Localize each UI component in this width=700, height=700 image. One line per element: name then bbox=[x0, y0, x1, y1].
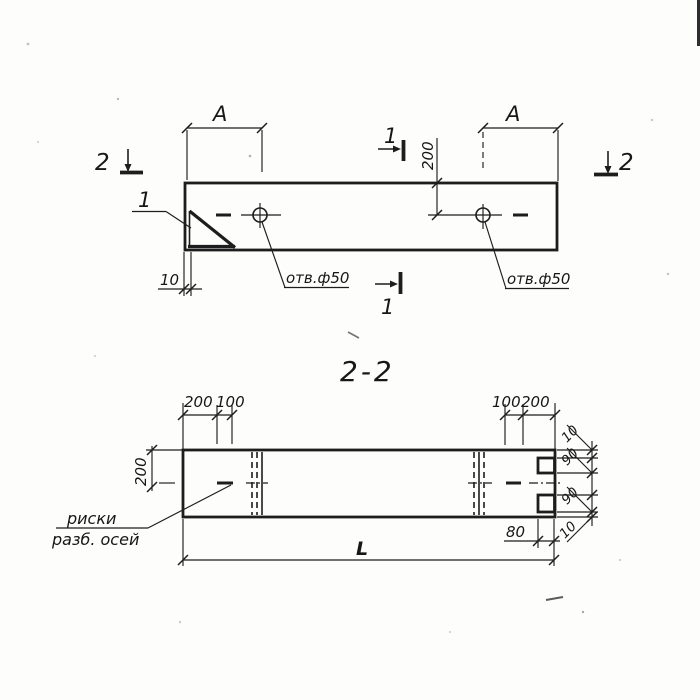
leader-line bbox=[485, 222, 506, 289]
detail-leader-line bbox=[166, 212, 191, 229]
dim-10-plan-label: 10 bbox=[160, 271, 179, 289]
axis-note-line1: риски bbox=[66, 509, 116, 528]
detail-callout-label: 1 bbox=[138, 188, 151, 212]
detail-callout-1: 1 bbox=[132, 188, 191, 228]
notch-top bbox=[538, 458, 555, 473]
dim-chain-right: 10 90 90 10 bbox=[556, 422, 598, 542]
section-view: 2-2 bbox=[51, 355, 598, 566]
hole-label-right-text: отв.ф50 bbox=[507, 270, 570, 288]
hole-left bbox=[216, 203, 281, 228]
leader-line bbox=[262, 222, 285, 288]
corner-plate-detail bbox=[188, 211, 235, 248]
dim-200-plan-label: 200 bbox=[419, 141, 437, 170]
notch-bottom bbox=[538, 495, 555, 512]
dim-a-left-label: A bbox=[211, 102, 227, 126]
dim-tl-100-label: 100 bbox=[216, 393, 245, 411]
dim-tr-100-label: 100 bbox=[492, 393, 521, 411]
section-mark-1-bottom: 1 bbox=[375, 272, 401, 319]
section-mark-2-left-label: 2 bbox=[95, 150, 110, 176]
end-notches bbox=[538, 458, 555, 512]
dim-height-200-label: 200 bbox=[132, 457, 150, 486]
dim-tl-200-label: 200 bbox=[184, 393, 213, 411]
dim-a-right: A bbox=[478, 102, 563, 181]
dim-80-label: 80 bbox=[506, 523, 525, 541]
dim-10-plan: 10 bbox=[158, 252, 202, 296]
leader-line bbox=[148, 485, 231, 528]
hole-label-left-text: отв.ф50 bbox=[286, 269, 349, 287]
dim-right-10-top-label: 10 bbox=[558, 422, 581, 445]
dim-a-right-label: A bbox=[504, 102, 520, 126]
section-mark-1-top-label: 1 bbox=[384, 124, 397, 148]
plan-beam-outline bbox=[185, 183, 557, 250]
dim-a-left: A bbox=[182, 102, 267, 180]
technical-drawing: 1 A bbox=[0, 0, 700, 700]
dim-80: 80 bbox=[504, 519, 560, 566]
dim-height-200: 200 bbox=[132, 445, 184, 492]
arrow-right-icon bbox=[390, 281, 398, 288]
section-mark-2-right-label: 2 bbox=[619, 150, 634, 176]
dim-tr-200-label: 200 bbox=[521, 393, 550, 411]
hole-label-left: отв.ф50 bbox=[262, 222, 349, 288]
section-mark-1-top: 1 bbox=[378, 124, 404, 161]
scanned-drawing-sheet: 1 A bbox=[0, 0, 700, 700]
hole-right bbox=[428, 204, 528, 229]
dim-right-10-bottom-label: 10 bbox=[556, 518, 579, 541]
dim-right-90-upper-label: 90 bbox=[558, 445, 581, 468]
dim-200-plan: 200 bbox=[419, 138, 442, 220]
dim-top-left: 200 100 bbox=[178, 393, 245, 449]
dim-length-l: L bbox=[178, 519, 559, 566]
dim-top-right: 100 200 bbox=[492, 393, 560, 449]
section-mark-1-bottom-label: 1 bbox=[381, 295, 394, 319]
dim-right-90-lower-label: 90 bbox=[558, 484, 581, 507]
section-mark-2-right: 2 bbox=[594, 150, 634, 176]
section-beam-outline bbox=[183, 450, 555, 517]
plan-view: 1 A bbox=[95, 102, 634, 319]
section-title: 2-2 bbox=[340, 355, 395, 388]
section-mark-2-left: 2 bbox=[95, 149, 143, 176]
axis-note-line2: разб. осей bbox=[51, 530, 139, 549]
dim-length-label: L bbox=[356, 538, 368, 560]
